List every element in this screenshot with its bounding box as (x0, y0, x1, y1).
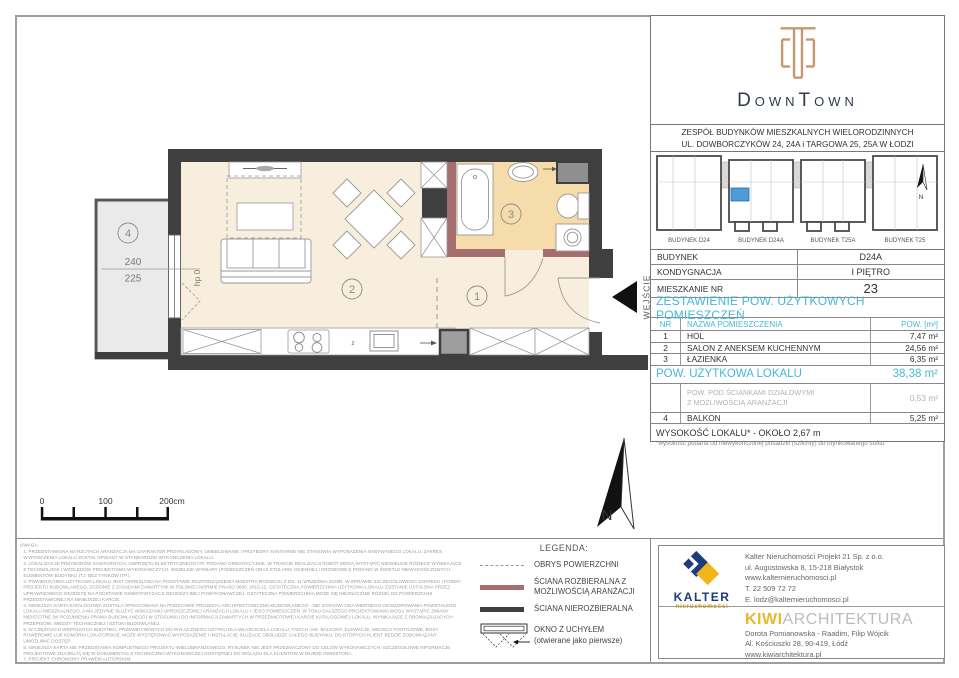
svg-text:240: 240 (125, 257, 142, 268)
kitchen-z-label: z (351, 340, 354, 347)
building-label-t25a: BUDYNEK T25A (811, 238, 856, 244)
bottom-divider (15, 538, 943, 539)
kitchen-sink (370, 331, 398, 351)
shaft-kitchen (440, 330, 468, 355)
kalter-email: E. lodz@kalternieruchomosci.pl (745, 595, 884, 606)
building-label-t25: BUDYNEK T25 (885, 238, 927, 244)
floor-value: I PIĘTRO (798, 267, 945, 277)
area-table-title: ZESTAWIENIE POW. UŻYTKOWYCH POMIESZCZEŃ (651, 298, 944, 318)
table-row: 3 ŁAZIENKA 6,35 m² (651, 354, 944, 366)
site-plan: N BUDYNEK D24 BUDYNEK D24A BUDYNEK T25A … (651, 152, 944, 250)
kiwi-block: KIWIARCHITEKTURA Dorota Pomianowska - Ra… (659, 607, 944, 661)
bottom-vertical-divider (650, 538, 651, 662)
legend-item-structural-wall: ŚCIANA NIEROZBIERALNA (480, 604, 648, 614)
project-address-line1: ZESPÓŁ BUDYNKÓW MIESZKALNYCH WIELORODZIN… (651, 127, 944, 139)
table-row: 1 HOL 7,47 m² (651, 331, 944, 343)
area-table-header: NR NAZWA POMIESZCZENIA POW. [m²] (651, 318, 944, 331)
dashed-line-swatch (480, 565, 524, 566)
company-box: KALTER nieruchomości Kalter Nieruchomośc… (658, 545, 945, 659)
toilet (557, 193, 589, 219)
ceiling-height-note: WYSOKOŚĆ LOKALU* - OKOŁO 2,67 m (651, 424, 944, 438)
building-label-d24a: BUDYNEK D24A (738, 238, 784, 244)
kalter-subname: nieruchomości (659, 603, 745, 610)
entrance-arrow-icon (612, 281, 637, 313)
svg-text:225: 225 (125, 274, 142, 285)
building-value: D24A (798, 252, 945, 262)
kalter-logo-icon (679, 550, 725, 586)
info-row-building: BUDYNEK D24A (651, 250, 944, 265)
north-arrow: N (597, 438, 634, 529)
legend-item-tilt-window: OKNO Z UCHYŁEM (otwierane jako pierwsze) (480, 622, 648, 650)
disclaimer-notes: UWAGA: 1. PRZEDSTAWIONA NA RZUTACH ARANŻ… (20, 542, 462, 662)
kiwi-contact: Dorota Pomianowska - Raadim, Filip Wójci… (745, 629, 944, 661)
kalter-contact: Kalter Nieruchomości Projekt 21 Sp. z o.… (745, 546, 884, 606)
project-address-line2: UL. DOWBORCZYKÓW 24, 24A i TARGOWA 25, 2… (651, 139, 944, 151)
structural-wall-swatch (480, 607, 524, 612)
scale-bar: 0 100 200cm (40, 496, 185, 521)
note-item: 2. LOKALIZACJE PRZYBORÓW SANITARNYCH, OS… (20, 560, 462, 578)
building-label-d24: BUDYNEK D24 (668, 238, 710, 244)
kalter-website: www.kalternieruchomosci.pl (745, 573, 884, 584)
notes-title: UWAGA: (20, 542, 462, 548)
kiwi-website: www.kiwiarchitektura.pl (745, 650, 944, 661)
note-item: 1. PRZEDSTAWIONA NA RZUTACH ARANŻACJA MA… (20, 549, 462, 561)
highlighted-unit (731, 188, 749, 201)
svg-text:4: 4 (125, 228, 131, 240)
bathtub (457, 164, 493, 235)
height-footnote: *wysokość podana od niewykończonej posad… (651, 438, 944, 447)
removable-wall-swatch (480, 585, 524, 590)
dining-set (333, 179, 415, 259)
info-row-floor: KONDYGNACJA I PIĘTRO (651, 265, 944, 280)
kalter-name: KALTER (659, 591, 745, 603)
developer-logo-section: DownTown (651, 16, 944, 125)
table-row-balcony: 4 BALKON 5,25 m² (651, 413, 944, 425)
svg-text:N: N (602, 507, 613, 524)
sofa (221, 239, 311, 283)
legend-title: LEGENDA: (480, 543, 648, 553)
washbasin (508, 163, 538, 182)
svg-text:N: N (919, 194, 924, 201)
unit-panel: DownTown ZESPÓŁ BUDYNKÓW MIESZKALNYCH WI… (650, 15, 945, 442)
legend-item-outline: OBRYS POWIERZCHNI (480, 560, 648, 570)
svg-text:3: 3 (508, 209, 514, 221)
partition-walls-row: POW. POD ŚCIANKAMI DZIAŁOWYMI Z MOŻLIWOŚ… (651, 384, 944, 413)
note-item: 5. W CZĘŚCIACH WSPÓLNYCH BUDYNKU, PRZEWI… (20, 626, 462, 644)
total-area-value: 38,38 m² (893, 368, 944, 380)
kalter-logo: KALTER nieruchomości (659, 546, 745, 606)
note-item: 7. PROJEKT CHRONIONY PRAWEM AUTORSKIM. (20, 656, 462, 662)
developer-name: DownTown (651, 90, 944, 112)
window-sill-label: hp 0 (192, 269, 202, 286)
svg-text:100: 100 (98, 496, 112, 506)
total-area-row: POW. UŻYTKOWA LOKALU 38,38 m² (651, 366, 944, 384)
site-plan-drawing: N BUDYNEK D24 BUDYNEK D24A BUDYNEK T25A … (651, 152, 943, 248)
washing-machine (556, 224, 589, 251)
tilt-window-icon (480, 622, 532, 650)
kiwi-logo: KIWIARCHITEKTURA (745, 611, 944, 629)
note-item: 3. POWIERZCHNIA UŻYTKOWA LOKALU JEST OKR… (20, 578, 462, 602)
downtown-logo-icon (766, 22, 830, 84)
legend: LEGENDA: OBRYS POWIERZCHNI ŚCIANA ROZBIE… (480, 543, 648, 657)
table-row: 2 SALON Z ANEKSEM KUCHENNYM 24,56 m² (651, 343, 944, 355)
svg-text:200cm: 200cm (159, 496, 185, 506)
hall-wardrobes (470, 328, 589, 355)
svg-text:0: 0 (40, 496, 45, 506)
project-address: ZESPÓŁ BUDYNKÓW MIESZKALNYCH WIELORODZIN… (651, 125, 944, 152)
shaft-bath (557, 162, 589, 183)
note-item: 4. NINIEJSZA KARTA KATALOGOWA ZOSTAŁA OP… (20, 602, 462, 626)
note-item: 6. NINIEJSZA KARTA NIE PRZEDSTAWIA KOMPL… (20, 644, 462, 656)
kalter-block: KALTER nieruchomości Kalter Nieruchomośc… (659, 546, 944, 607)
svg-text:2: 2 (349, 284, 355, 296)
legend-item-removable-wall: ŚCIANA ROZBIERALNA Z MOŻLIWOŚCIĄ ARANŻAC… (480, 577, 648, 597)
svg-text:1: 1 (474, 291, 480, 303)
